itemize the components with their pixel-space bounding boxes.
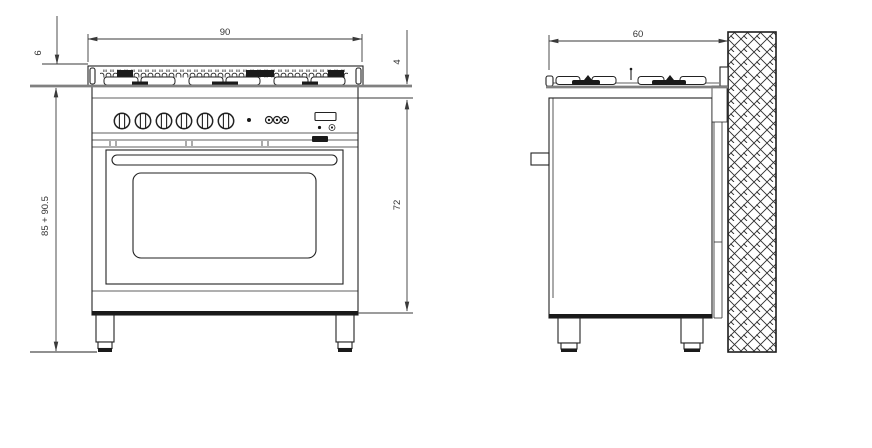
technical-drawing: 90 6 85 + 90.5 4 72 <box>0 0 872 448</box>
leg-front-left <box>96 315 114 342</box>
back-panel <box>712 86 727 318</box>
dim-label-depth: 60 <box>633 29 644 40</box>
dim-front-width: 90 <box>88 27 362 62</box>
pan-support-grate <box>100 70 348 78</box>
leg-side-rear <box>681 318 703 343</box>
brand-badge <box>312 136 328 142</box>
side-legs <box>558 318 703 352</box>
backguard-upstand <box>720 67 728 86</box>
dim-body-height: 72 <box>358 100 413 313</box>
dim-trim-height: 4 <box>358 30 413 98</box>
side-body <box>549 98 712 318</box>
dim-label-body-height: 72 <box>392 200 403 211</box>
front-base-band <box>92 311 358 315</box>
dim-depth: 60 <box>549 29 728 70</box>
burner-cap-side <box>652 80 686 85</box>
leg-side-front <box>558 318 580 343</box>
leg-front-right <box>336 315 354 342</box>
cooktop-side <box>546 68 719 86</box>
side-dimensions: 60 <box>549 29 728 70</box>
side-door-handle <box>531 153 549 165</box>
front-legs <box>96 315 354 352</box>
dim-overall-height: 85 + 90.5 <box>40 88 56 351</box>
front-view <box>30 66 412 352</box>
dim-label-overall-height: 85 + 90.5 <box>40 196 51 236</box>
side-view <box>531 32 776 352</box>
cooktop-front <box>88 66 363 86</box>
wall-section <box>728 32 776 352</box>
dim-hob-height: 6 <box>33 16 88 64</box>
dim-label-front-width: 90 <box>220 27 231 38</box>
hob-front-lip <box>546 76 553 86</box>
side-base-band <box>549 314 712 318</box>
burner-cap-side <box>572 80 600 85</box>
dim-label-trim-height: 4 <box>392 59 403 64</box>
indicator-dot <box>247 118 251 122</box>
range-cooker-dimension-drawing: 90 6 85 + 90.5 4 72 <box>0 0 872 448</box>
dim-label-hob-height: 6 <box>33 50 44 55</box>
